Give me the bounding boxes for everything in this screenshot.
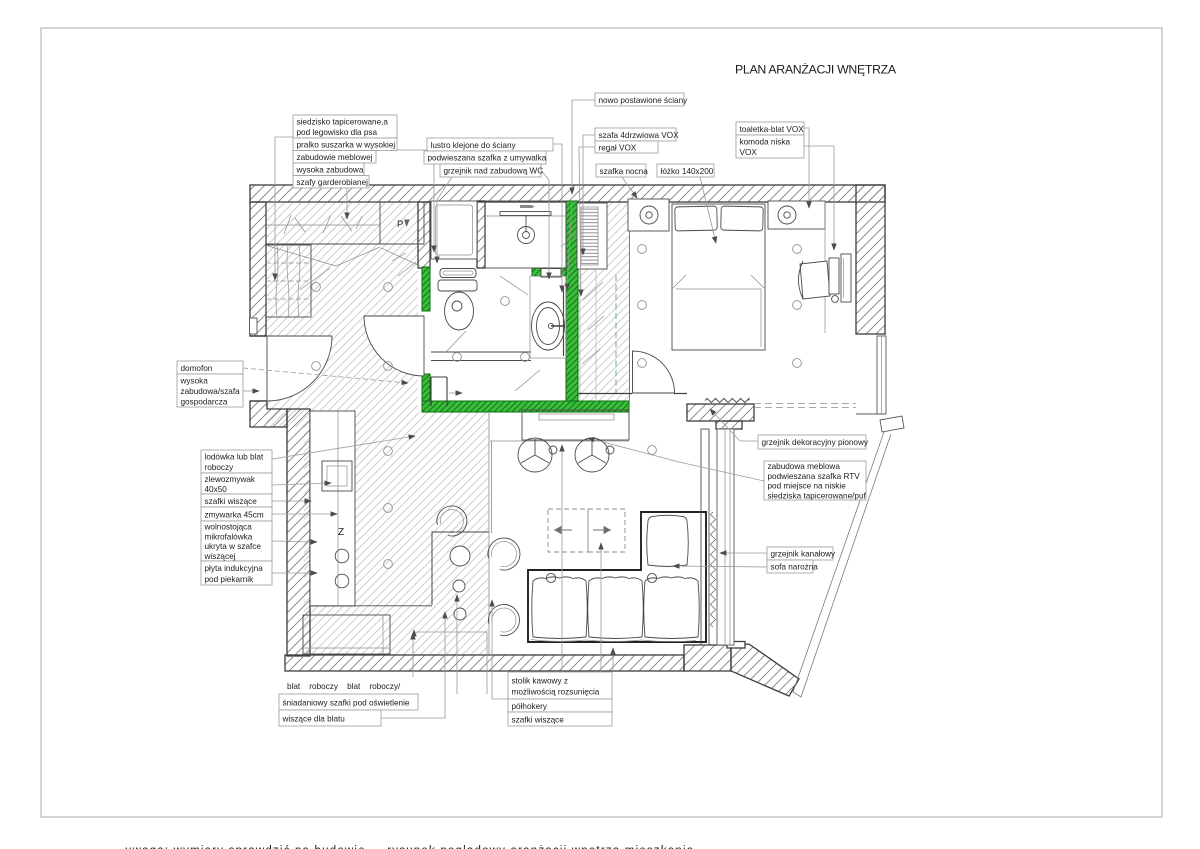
svg-text:wysoka zabudowa: wysoka zabudowa xyxy=(296,166,364,175)
svg-text:nowo postawione ściany: nowo postawione ściany xyxy=(599,96,689,105)
svg-text:możliwością rozsunięcia: możliwością rozsunięcia xyxy=(512,687,600,696)
svg-text:szafy garderobianej: szafy garderobianej xyxy=(297,178,369,187)
svg-text:VOX: VOX xyxy=(740,148,758,157)
svg-text:Z: Z xyxy=(338,527,344,538)
svg-text:płyta indukcyjna: płyta indukcyjna xyxy=(205,564,264,573)
svg-text:gospodarcza: gospodarcza xyxy=(181,397,228,406)
svg-text:szafa 4drzwiowa VOX: szafa 4drzwiowa VOX xyxy=(599,131,680,140)
svg-text:ukryta w szafce: ukryta w szafce xyxy=(205,542,262,551)
svg-text:pod piekarnik: pod piekarnik xyxy=(205,575,255,584)
svg-text:stolik kawowy z: stolik kawowy z xyxy=(512,676,568,685)
svg-text:pralko suszarka w wysokiej: pralko suszarka w wysokiej xyxy=(297,141,396,150)
svg-text:zabudowa/szafa: zabudowa/szafa xyxy=(181,387,241,396)
svg-text:siedzisko tapicerowane,a: siedzisko tapicerowane,a xyxy=(297,118,389,127)
svg-text:półhokery: półhokery xyxy=(512,702,548,711)
svg-text:grzejnik dekoracyjny pionowy: grzejnik dekoracyjny pionowy xyxy=(762,438,869,447)
svg-text:wysoka: wysoka xyxy=(180,376,209,385)
svg-text:wiszące dla blatu: wiszące dla blatu xyxy=(282,714,346,723)
svg-text:szafka nocna: szafka nocna xyxy=(600,167,649,176)
svg-text:lustro klejone do ściany: lustro klejone do ściany xyxy=(431,141,517,150)
svg-text:PLAN ARANŻACJI WNĘTRZA: PLAN ARANŻACJI WNĘTRZA xyxy=(735,63,897,77)
svg-text:regał VOX: regał VOX xyxy=(599,143,637,152)
svg-text:P: P xyxy=(397,219,403,230)
svg-text:łóżko 140x200: łóżko 140x200 xyxy=(661,167,714,176)
svg-text:zlewozmywak: zlewozmywak xyxy=(205,475,256,484)
svg-text:śniadaniowy szafki pod oświ: śniadaniowy szafki pod oświetlenie xyxy=(283,698,410,707)
svg-text:zmywarka 45cm: zmywarka 45cm xyxy=(205,510,264,519)
svg-text:pod miejsce na niskie: pod miejsce na niskie xyxy=(768,482,847,491)
svg-text:pod legowisko dla psa: pod legowisko dla psa xyxy=(297,128,378,137)
svg-text:zabudowie meblowej: zabudowie meblowej xyxy=(297,153,373,162)
svg-text:szafki wiszące: szafki wiszące xyxy=(512,715,565,724)
svg-text:siedziska tapicerowane/puf: siedziska tapicerowane/puf xyxy=(768,491,867,500)
svg-text:zabudowa meblowa: zabudowa meblowa xyxy=(768,462,841,471)
svg-text:lodówka lub blat: lodówka lub blat xyxy=(205,453,264,462)
svg-text:grzejnik nad zabudową WC: grzejnik nad zabudową WC xyxy=(444,167,544,176)
svg-text:40x50: 40x50 xyxy=(205,485,228,494)
svg-text:domofon: domofon xyxy=(181,364,213,373)
svg-text:komoda niska: komoda niska xyxy=(740,138,791,147)
svg-text:uwaga: wymiary sprawdzić na bu: uwaga: wymiary sprawdzić na budowie — ry… xyxy=(125,845,694,849)
svg-text:toaletka-blat VOX: toaletka-blat VOX xyxy=(740,125,805,134)
svg-text:blat roboczy blat rob: blat roboczy blat roboczy/ xyxy=(287,682,401,691)
svg-text:wiszącej: wiszącej xyxy=(204,552,236,561)
svg-text:wolnostojąca: wolnostojąca xyxy=(204,523,253,532)
svg-text:sofa narożna: sofa narożna xyxy=(771,563,819,572)
svg-text:szafki wiszące: szafki wiszące xyxy=(205,497,258,506)
svg-text:podwieszana szafka RTV: podwieszana szafka RTV xyxy=(768,472,861,481)
svg-text:mikrofalówka: mikrofalówka xyxy=(205,532,253,541)
svg-text:roboczy: roboczy xyxy=(205,463,235,472)
svg-text:podwieszana szafka z umywalka: podwieszana szafka z umywalka xyxy=(428,154,547,163)
svg-text:grzejnik kanałowy: grzejnik kanałowy xyxy=(771,550,837,559)
